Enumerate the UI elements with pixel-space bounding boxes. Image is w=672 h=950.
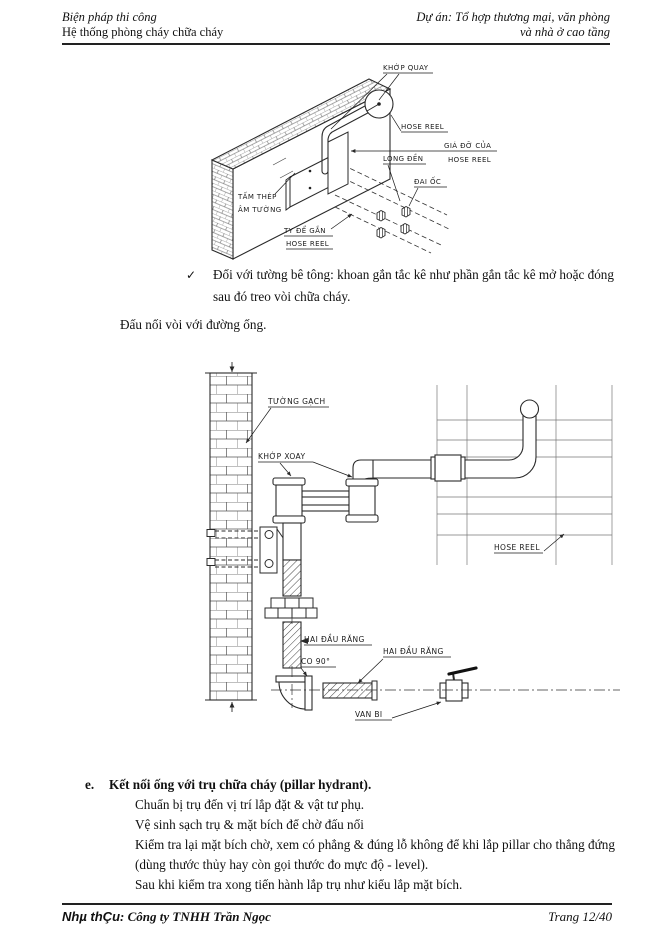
concrete-wall-note-text: Đối với tường bê tông: khoan gắn tắc kê … bbox=[213, 264, 614, 308]
washer-nut bbox=[401, 224, 409, 235]
section-e: e. Kết nối ống với trụ chữa cháy (pillar… bbox=[85, 775, 615, 895]
washer-nut bbox=[402, 207, 410, 218]
concrete-wall-note: ✓ Đối với tường bê tông: khoan gắn tắc k… bbox=[186, 264, 614, 308]
label-tam-thep-line1: TẤM THÉP bbox=[237, 191, 277, 201]
label-tuong-gach: TƯỜNG GẠCH bbox=[267, 397, 326, 406]
drop-pipe bbox=[283, 523, 301, 560]
pipe-end-cap bbox=[521, 400, 539, 418]
ball-valve bbox=[440, 668, 476, 701]
label-ty-de-gan-line1: TY ĐỂ GẮN bbox=[283, 225, 326, 235]
header-right-line1: Dự án: Tổ hợp thương mại, văn phòng bbox=[416, 10, 610, 25]
label-tam-thep-line2: ÂM TƯỜNG bbox=[238, 205, 282, 214]
header-right-line2: và nhà ở cao tầng bbox=[416, 25, 610, 40]
threaded-pipe-upper bbox=[283, 560, 301, 596]
section-e-body: Chuẩn bị trụ đến vị trí lắp đặt & vật tư… bbox=[135, 795, 615, 895]
elbow-90 bbox=[276, 676, 312, 710]
page-footer: Nhµ thÇu: Công ty TNHH Trần Ngọc Trang 1… bbox=[62, 903, 612, 925]
threaded-nipple bbox=[323, 683, 372, 698]
header-left: Biện pháp thi công Hệ thống phòng cháy c… bbox=[62, 10, 223, 40]
header-left-line2: Hệ thống phòng cháy chữa cháy bbox=[62, 25, 223, 40]
label-khop-quay: KHỚP QUAY bbox=[383, 63, 429, 72]
swivel-joint-assembly bbox=[273, 478, 378, 523]
label-van-bi: VAN BI bbox=[355, 710, 383, 719]
union-flange-stack bbox=[265, 598, 317, 618]
label-gia-do-line1: GIÁ ĐỠ CỦA bbox=[444, 140, 491, 150]
swivel-elbow bbox=[353, 460, 375, 479]
connect-hose-paragraph: Đấu nối vòi với đường ống. bbox=[120, 317, 266, 333]
label-co-90: CO 90° bbox=[301, 657, 330, 666]
header-right: Dự án: Tổ hợp thương mại, văn phòng và n… bbox=[416, 10, 610, 40]
label-hose-reel: HOSE REEL bbox=[401, 123, 444, 131]
section-e-line: Vệ sinh sạch trụ & mặt bích để chờ đấu n… bbox=[135, 815, 615, 835]
label-hai-dau-rang-1: HAI ĐẦU RĂNG bbox=[304, 634, 365, 644]
section-e-line: Chuẩn bị trụ đến vị trí lắp đặt & vật tư… bbox=[135, 795, 615, 815]
label-khop-xoay: KHỚP XOAY bbox=[258, 452, 305, 461]
footer-contractor-value: : Công ty TNHH Trần Ngọc bbox=[120, 909, 271, 924]
threaded-pipe-lower bbox=[283, 622, 301, 668]
footer-contractor-label: Nhµ thÇu bbox=[62, 909, 120, 924]
section-e-line: Kiểm tra lại mặt bích chờ, xem có phẳng … bbox=[135, 835, 615, 855]
section-e-title: Kết nối ống với trụ chữa cháy (pillar hy… bbox=[109, 775, 371, 795]
washer-nut bbox=[377, 228, 385, 239]
page-header: Biện pháp thi công Hệ thống phòng cháy c… bbox=[62, 10, 610, 45]
label-hai-dau-rang-2: HAI ĐẦU RĂNG bbox=[383, 646, 444, 656]
nipple-end-ring bbox=[372, 681, 377, 700]
footer-page-number: Trang 12/40 bbox=[548, 909, 612, 925]
section-e-line: Sau khi kiểm tra xong tiến hành lắp trụ … bbox=[135, 875, 615, 895]
pivot-pin bbox=[377, 102, 381, 106]
hose-pipe-connection-diagram: TƯỜNG GẠCH KHỚP XOAY HOSE REEL HAI ĐẦU R… bbox=[195, 358, 665, 743]
label-hose-reel: HOSE REEL bbox=[494, 543, 540, 552]
hose-reel-bracket bbox=[328, 132, 348, 194]
document-page: Biện pháp thi công Hệ thống phòng cháy c… bbox=[0, 0, 672, 950]
valve-handle bbox=[449, 668, 476, 674]
section-e-marker: e. bbox=[85, 775, 109, 795]
label-long-den: LONG ĐỀN bbox=[383, 153, 423, 163]
section-e-line: (dùng thước thủy hay còn gọi thước đo mự… bbox=[135, 855, 615, 875]
washer-nut bbox=[377, 211, 385, 222]
section-e-heading: e. Kết nối ống với trụ chữa cháy (pillar… bbox=[85, 775, 615, 795]
check-icon: ✓ bbox=[186, 264, 196, 286]
label-ty-de-gan-line2: HOSE REEL bbox=[286, 240, 329, 248]
hose-reel-mounting-diagram: KHỚP QUAY HOSE REEL GIÁ ĐỠ CỦA HOSE REEL… bbox=[185, 57, 620, 264]
label-gia-do-line2: HOSE REEL bbox=[448, 156, 491, 164]
footer-contractor: Nhµ thÇu: Công ty TNHH Trần Ngọc bbox=[62, 909, 271, 925]
pipe-coupling bbox=[431, 455, 465, 481]
header-left-line1: Biện pháp thi công bbox=[62, 10, 223, 25]
label-dai-oc: ĐAI ỐC bbox=[414, 176, 441, 186]
